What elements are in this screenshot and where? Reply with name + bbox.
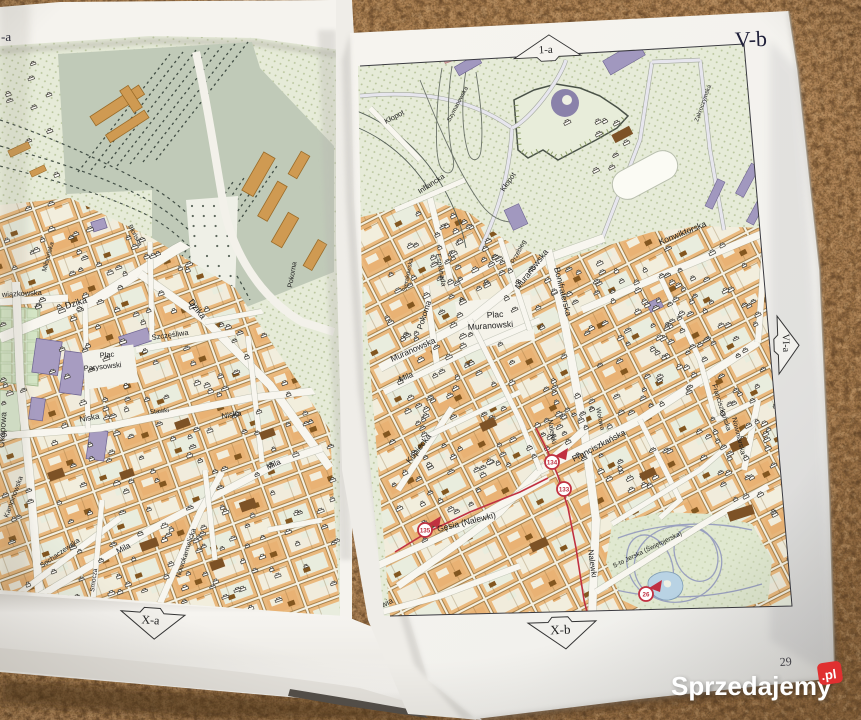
svg-text:Sprzedajemy: Sprzedajemy xyxy=(671,671,832,701)
svg-text:.pl: .pl xyxy=(820,666,837,683)
